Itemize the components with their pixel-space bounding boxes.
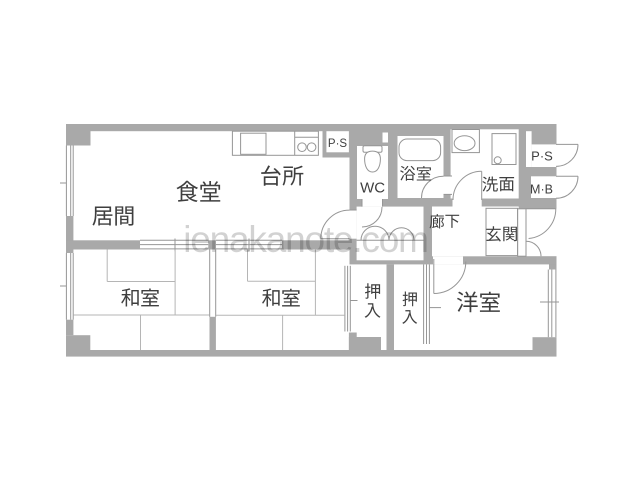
- svg-text:ienakanote.com: ienakanote.com: [183, 219, 427, 260]
- svg-text:WC: WC: [360, 180, 385, 197]
- svg-text:P·S: P·S: [328, 138, 348, 150]
- svg-text:M·B: M·B: [530, 182, 553, 196]
- svg-text:P·S: P·S: [531, 148, 553, 163]
